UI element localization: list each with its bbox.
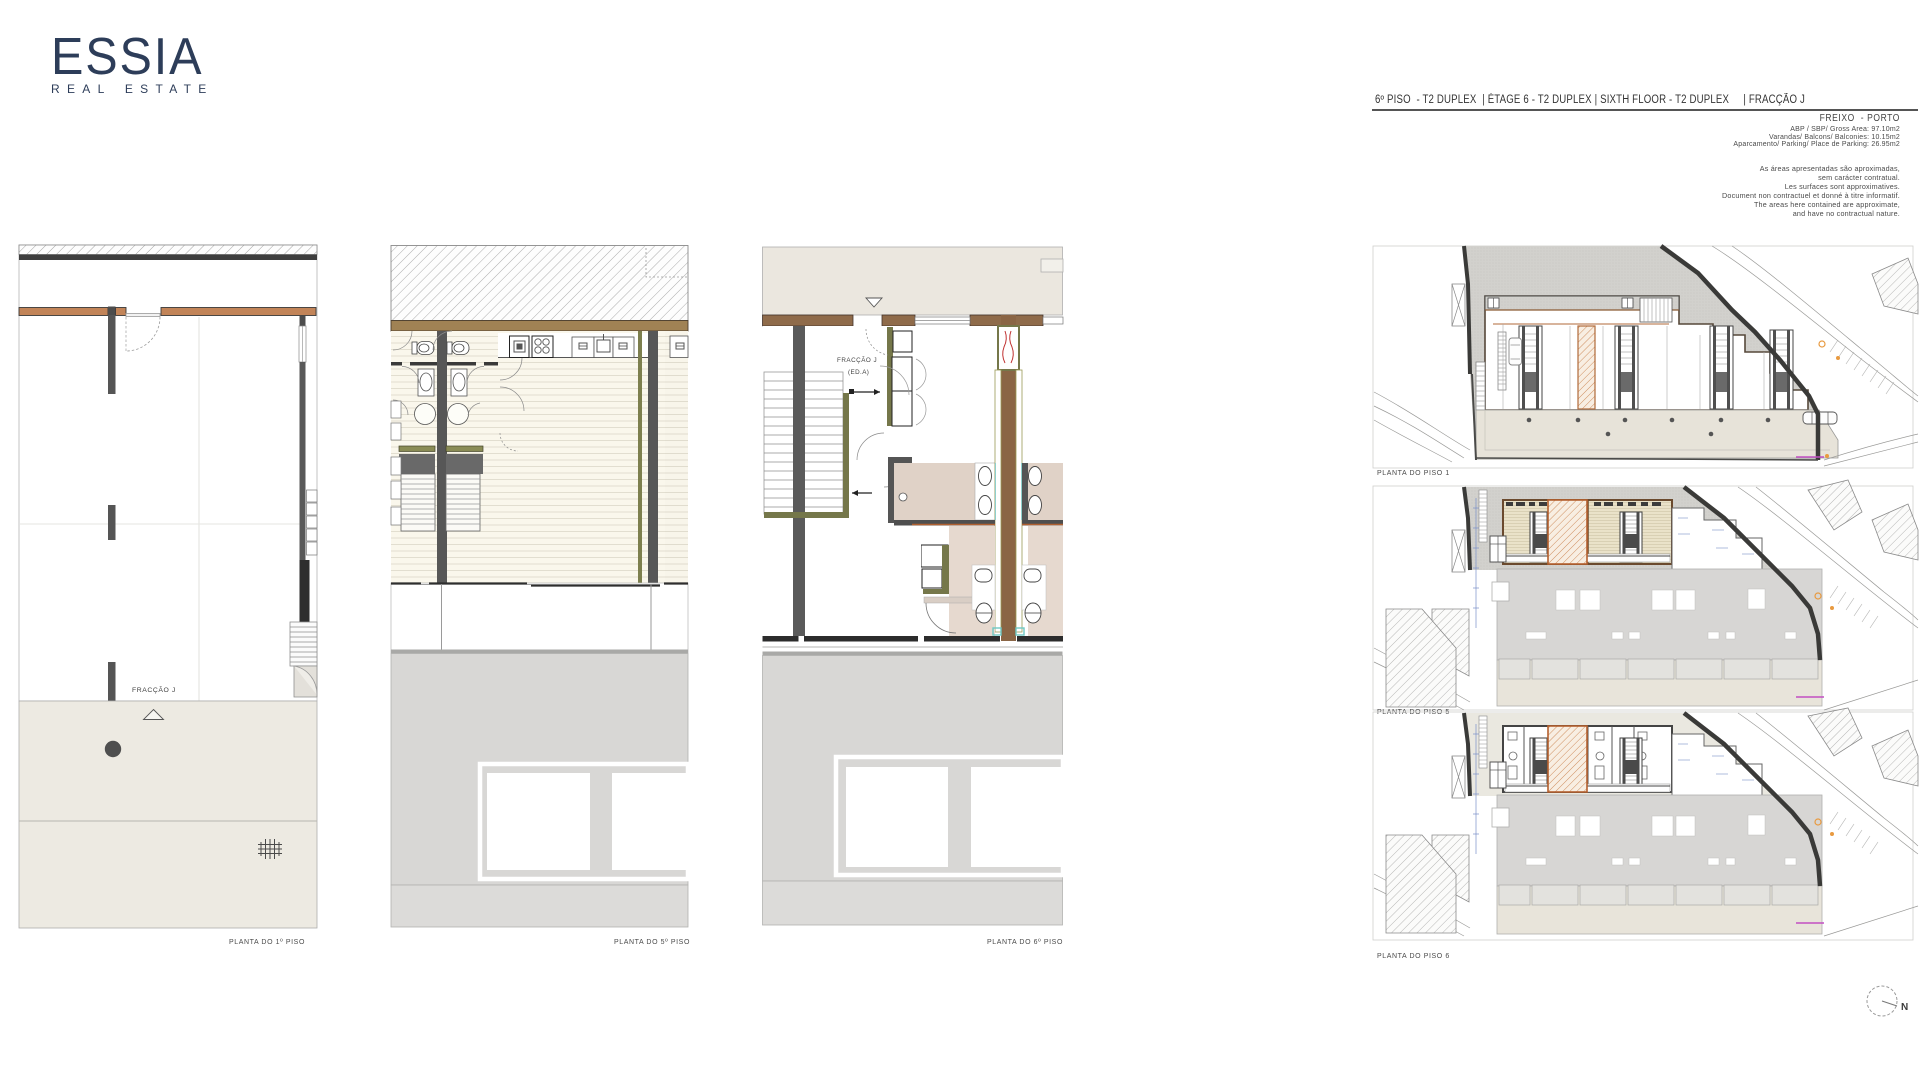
svg-text:N: N (1901, 1002, 1908, 1013)
svg-text:FRACÇÃO J: FRACÇÃO J (837, 355, 877, 364)
svg-text:(ED.A): (ED.A) (848, 369, 869, 376)
svg-text:FRACÇÃO J: FRACÇÃO J (132, 685, 176, 694)
